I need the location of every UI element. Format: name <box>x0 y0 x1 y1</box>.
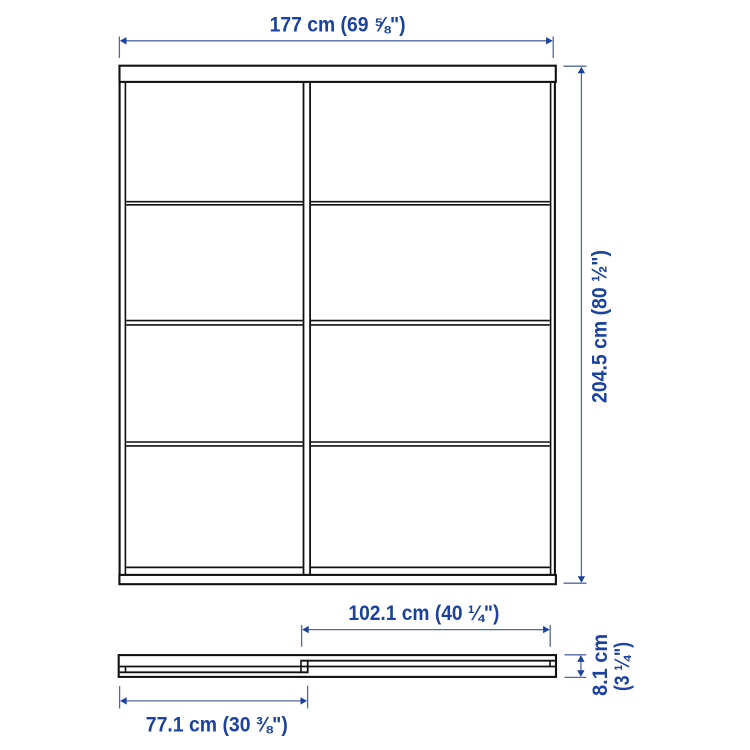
svg-text:(3 ¼"): (3 ¼") <box>610 642 634 691</box>
svg-text:102.1 cm (40 ¼"): 102.1 cm (40 ¼") <box>348 601 499 625</box>
svg-text:177 cm (69 ⅝"): 177 cm (69 ⅝") <box>270 13 406 37</box>
svg-text:77.1 cm (30 ⅜"): 77.1 cm (30 ⅜") <box>146 713 288 737</box>
svg-text:204.5 cm (80 ½"): 204.5 cm (80 ½") <box>588 250 612 403</box>
svg-text:8.1 cm: 8.1 cm <box>588 634 612 696</box>
